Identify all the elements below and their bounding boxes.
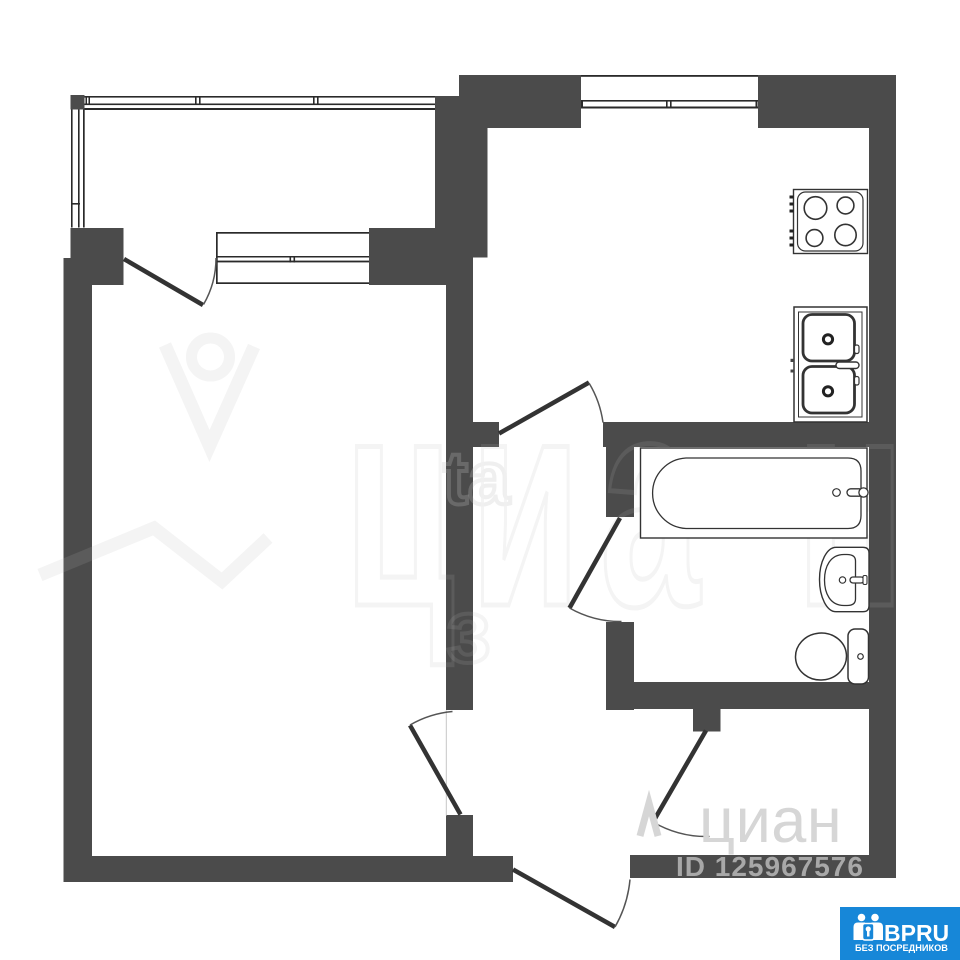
svg-text:БЕЗ ПОСРЕДНИКОВ: БЕЗ ПОСРЕДНИКОВ <box>855 943 948 953</box>
svg-text:циан: циан <box>699 786 842 856</box>
svg-text:ID 125967576: ID 125967576 <box>676 851 864 882</box>
